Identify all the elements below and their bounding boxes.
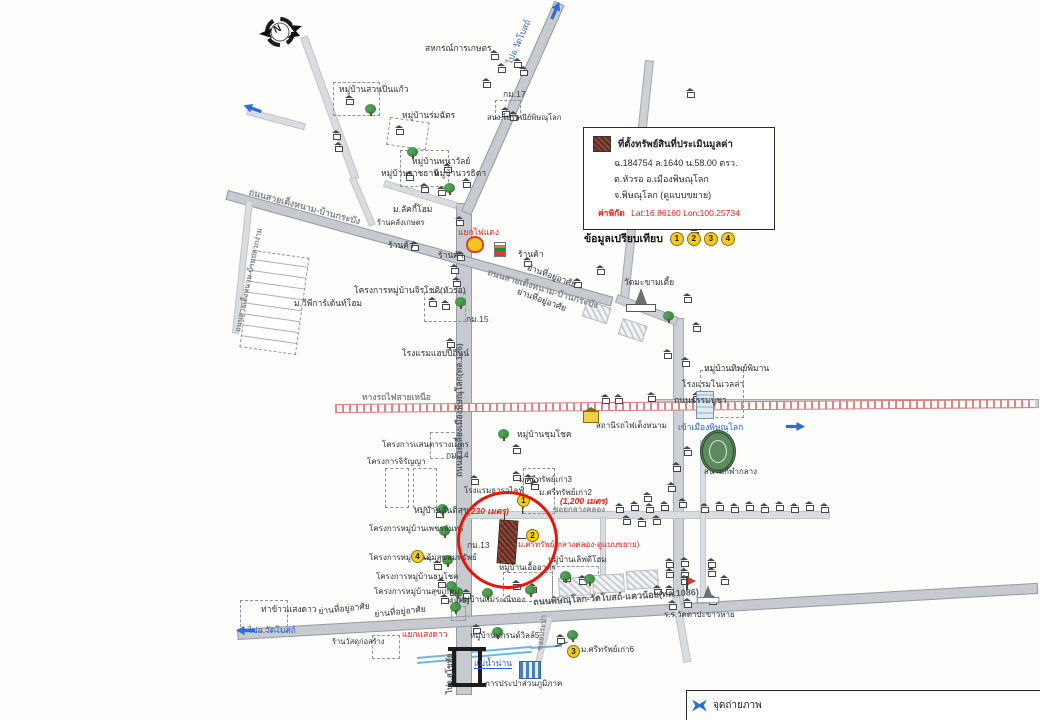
house-icon xyxy=(665,558,674,566)
house-icon xyxy=(441,300,450,308)
place-label: ย่านที่อยู่อาศัย xyxy=(374,605,426,620)
house-icon xyxy=(683,446,692,454)
house-icon xyxy=(450,264,459,272)
legend-province-line: จ.พิษณุโลก (ดูแบบขยาย) xyxy=(584,186,774,202)
place-label: หมู่บ้านทิพย์พิมาน xyxy=(704,364,769,373)
legend-title: ที่ตั้งทรัพย์สินที่ประเมินมูลค่า xyxy=(618,137,733,152)
area-outline xyxy=(386,117,430,150)
hatched-block xyxy=(618,318,648,342)
coords-value: Lat:16.86160 Lon:100.25734 xyxy=(631,208,740,218)
place-label: โครงการหมู่บ้านเพชรจันทร์ xyxy=(369,525,464,534)
comparison-marker-3: 3 xyxy=(567,645,580,658)
tree-icon xyxy=(584,574,595,584)
railway-label: ทางรถไฟสายเหนือ xyxy=(362,393,431,402)
place-label: หมู่บ้านแกรนด์วิลล์5 xyxy=(470,632,539,641)
house-icon xyxy=(760,503,769,511)
place-label: ย่านที่อยู่อาศัย xyxy=(318,602,370,617)
house-icon xyxy=(683,293,692,301)
map-layers: สหกรณ์การเกษตรกม.17สนง.ไปรษณีย์พิษณุโลกห… xyxy=(0,0,1040,720)
river-label: แม่น้ำน่าน xyxy=(474,659,512,669)
tree-icon xyxy=(560,571,571,581)
house-icon xyxy=(820,503,829,511)
house-icon xyxy=(745,501,754,509)
place-label: โครงการหมู่บ้านสุขเกษม xyxy=(374,588,460,597)
house-icon xyxy=(681,357,690,365)
comparison-badge-1: 1 xyxy=(670,232,684,246)
legend-district-line: ต.หัวรอ อ.เมืองพิษณุโลก xyxy=(584,170,774,186)
house-icon xyxy=(775,501,784,509)
junction-label: แยกแสงดาว xyxy=(402,630,448,639)
house-icon xyxy=(482,78,491,86)
road-label: ถนนสายเลี่ยงเมืองพิษณุโลก(ทล.126) xyxy=(455,343,464,477)
place-label: หมู่บ้านสันติสุข xyxy=(414,506,469,515)
house-icon xyxy=(332,130,341,138)
photo-point-box: จุดถ่ายภาพ xyxy=(686,690,1040,720)
place-label: โครงการหมู่บ้านธนโชค xyxy=(376,573,459,582)
place-label: หมู่บ้านแม่ระณีทอง xyxy=(459,596,525,605)
house-icon xyxy=(556,634,565,642)
house-icon xyxy=(692,322,701,330)
pwa-icon xyxy=(519,661,541,679)
area-outline xyxy=(385,468,409,508)
house-icon xyxy=(395,125,404,133)
house-icon xyxy=(647,392,656,400)
place-label: ม.ลัคกี้โฮม xyxy=(393,205,432,214)
tree-icon xyxy=(455,297,466,307)
camera-viewpoint-icon xyxy=(692,700,707,712)
house-icon xyxy=(643,492,652,500)
place-label: โรงแรมโนเวลล่า xyxy=(682,380,744,389)
area-outline xyxy=(413,468,437,508)
scanned-property-map: สหกรณ์การเกษตรกม.17สนง.ไปรษณีย์พิษณุโลกห… xyxy=(0,0,1040,720)
house-icon xyxy=(345,95,354,103)
house-icon xyxy=(715,501,724,509)
photo-point-label: จุดถ่ายภาพ xyxy=(713,698,762,713)
place-label: โครงการหมู่บ้านจิรโชติ(หัวรอ) xyxy=(354,286,466,295)
junction-label: แยกไฟแดง xyxy=(458,228,499,237)
house-icon xyxy=(622,515,631,523)
temple-icon xyxy=(697,585,720,605)
house-icon xyxy=(637,517,646,525)
comparison-header: ข้อมูลเปรียบเทียบ 1 2 3 4 xyxy=(584,230,735,247)
house-icon xyxy=(428,297,437,305)
legend-box: ที่ตั้งทรัพย์สินที่ประเมินมูลค่า ฉ.18475… xyxy=(583,127,775,230)
house-icon xyxy=(660,501,669,509)
house-icon xyxy=(678,498,687,506)
house-icon xyxy=(645,503,654,511)
road xyxy=(246,108,306,130)
house-icon xyxy=(630,501,639,509)
place-label: หมู่บ้านร่มฉัตร xyxy=(402,111,455,120)
house-icon xyxy=(667,482,676,490)
comparison-badge-2: 2 xyxy=(687,232,701,246)
direction-label: เข้าเมืองพิษณุโลก xyxy=(678,423,743,432)
comparison-badge-3: 3 xyxy=(704,232,718,246)
place-label: ม.ศรีทรัพย์เก่า3 xyxy=(519,476,572,485)
house-icon xyxy=(497,63,506,71)
place-label: ม.ศรีทรัพย์เก่า6 xyxy=(581,646,634,655)
arrow-icon xyxy=(786,422,805,431)
waterworks-label: การประปาส่วนภูมิภาค xyxy=(485,680,562,689)
direction-label: ไปจ.สุโขทัย xyxy=(446,653,455,694)
place-label: ร้านค้า xyxy=(438,251,464,260)
temple-icon xyxy=(626,288,656,314)
place-label: หมู่บ้านราชธานี xyxy=(381,169,439,178)
place-label: สหกรณ์การเกษตร xyxy=(425,44,492,53)
house-icon xyxy=(596,265,605,273)
house-icon xyxy=(334,142,343,150)
km-marker: กม.15 xyxy=(466,315,489,324)
property-hatch-swatch xyxy=(593,136,611,152)
place-label: ร้านค้า xyxy=(388,241,414,250)
house-icon xyxy=(519,66,528,74)
road-label: ซอยกลางคลอง xyxy=(553,506,605,515)
distance-label: (1,200 เมตร) xyxy=(560,497,608,506)
house-icon xyxy=(680,557,689,565)
km-marker: กม.17 xyxy=(503,90,526,99)
school-label: ร.ร.วัดตาปะขาวหาย xyxy=(664,611,735,620)
road-label: ถนนธรรมบูชา xyxy=(674,396,727,405)
house-icon xyxy=(615,503,624,511)
tree-icon xyxy=(365,104,376,114)
place-label: ท่าข้าวแสงดาว xyxy=(261,605,317,614)
railway-station-label: สถานีรถไฟเต็งหนาม xyxy=(596,422,667,431)
temple-label: วัดมะขามเตี้ย xyxy=(624,278,674,287)
house-icon xyxy=(455,216,464,224)
compass-icon: N xyxy=(258,10,304,56)
house-icon xyxy=(663,349,672,357)
place-label: โครงการจิรัญญา xyxy=(367,458,426,467)
coords-label: ค่าพิกัด xyxy=(598,208,625,218)
house-icon xyxy=(614,394,623,402)
place-label: หมู่บ้านเลิฟดีโฮม xyxy=(548,556,607,565)
tree-icon xyxy=(444,183,455,193)
house-icon xyxy=(790,503,799,511)
stadium-label: สนามกีฬากลาง xyxy=(704,468,757,477)
legend-deed-line: ฉ.184754 ล.1640 น.58.00 ตรว. xyxy=(584,154,774,170)
place-label: หมู่บ้านพนาวัลย์ xyxy=(412,157,470,166)
place-label: หมู่บ้านวรธิดา xyxy=(434,169,486,178)
house-icon xyxy=(683,598,692,606)
tree-icon xyxy=(567,630,578,640)
house-icon xyxy=(686,88,695,96)
comparison-label: ข้อมูลเปรียบเทียบ xyxy=(584,230,663,247)
comparison-marker-4: 4 xyxy=(411,550,424,563)
house-icon xyxy=(665,568,674,576)
place-label: สนง.ไปรษณีย์พิษณุโลก xyxy=(487,114,561,122)
place-label: หมู่บ้านชุมโชค xyxy=(517,430,572,439)
tree-icon xyxy=(498,429,509,439)
place-label: ร้านคลังเกษตร xyxy=(377,219,425,227)
legend-coordinates: ค่าพิกัด Lat:16.86160 Lon:100.25734 xyxy=(584,202,774,220)
house-icon xyxy=(452,277,461,285)
house-icon xyxy=(462,178,471,186)
house-icon xyxy=(420,183,429,191)
house-icon xyxy=(652,515,661,523)
direction-label: ไปอ.วัดโบสถ์ xyxy=(248,626,296,635)
house-icon xyxy=(805,501,814,509)
house-icon xyxy=(601,394,610,402)
tree-icon xyxy=(525,585,536,595)
place-label: หมู่บ้านสวนปิ่นแก้ว xyxy=(339,85,409,94)
house-icon xyxy=(668,600,677,608)
seven-icon xyxy=(494,242,506,257)
house-icon xyxy=(730,503,739,511)
place-label: ม.วีพีการ์เด้นท์โฮม xyxy=(294,299,362,308)
house-icon xyxy=(470,475,479,483)
house-icon xyxy=(672,462,681,470)
house-icon xyxy=(707,558,716,566)
tree-icon xyxy=(663,311,674,321)
place-label: ร้านวัสดุก่อสร้าง xyxy=(332,638,385,646)
place-label: ร้านค้า xyxy=(518,250,544,259)
subject-property-parcel xyxy=(496,519,518,564)
house-icon xyxy=(720,575,729,583)
shell-icon xyxy=(466,236,484,253)
house-icon xyxy=(707,567,716,575)
house-icon xyxy=(512,444,521,452)
house-icon xyxy=(700,503,709,511)
comparison-badge-4: 4 xyxy=(721,232,735,246)
